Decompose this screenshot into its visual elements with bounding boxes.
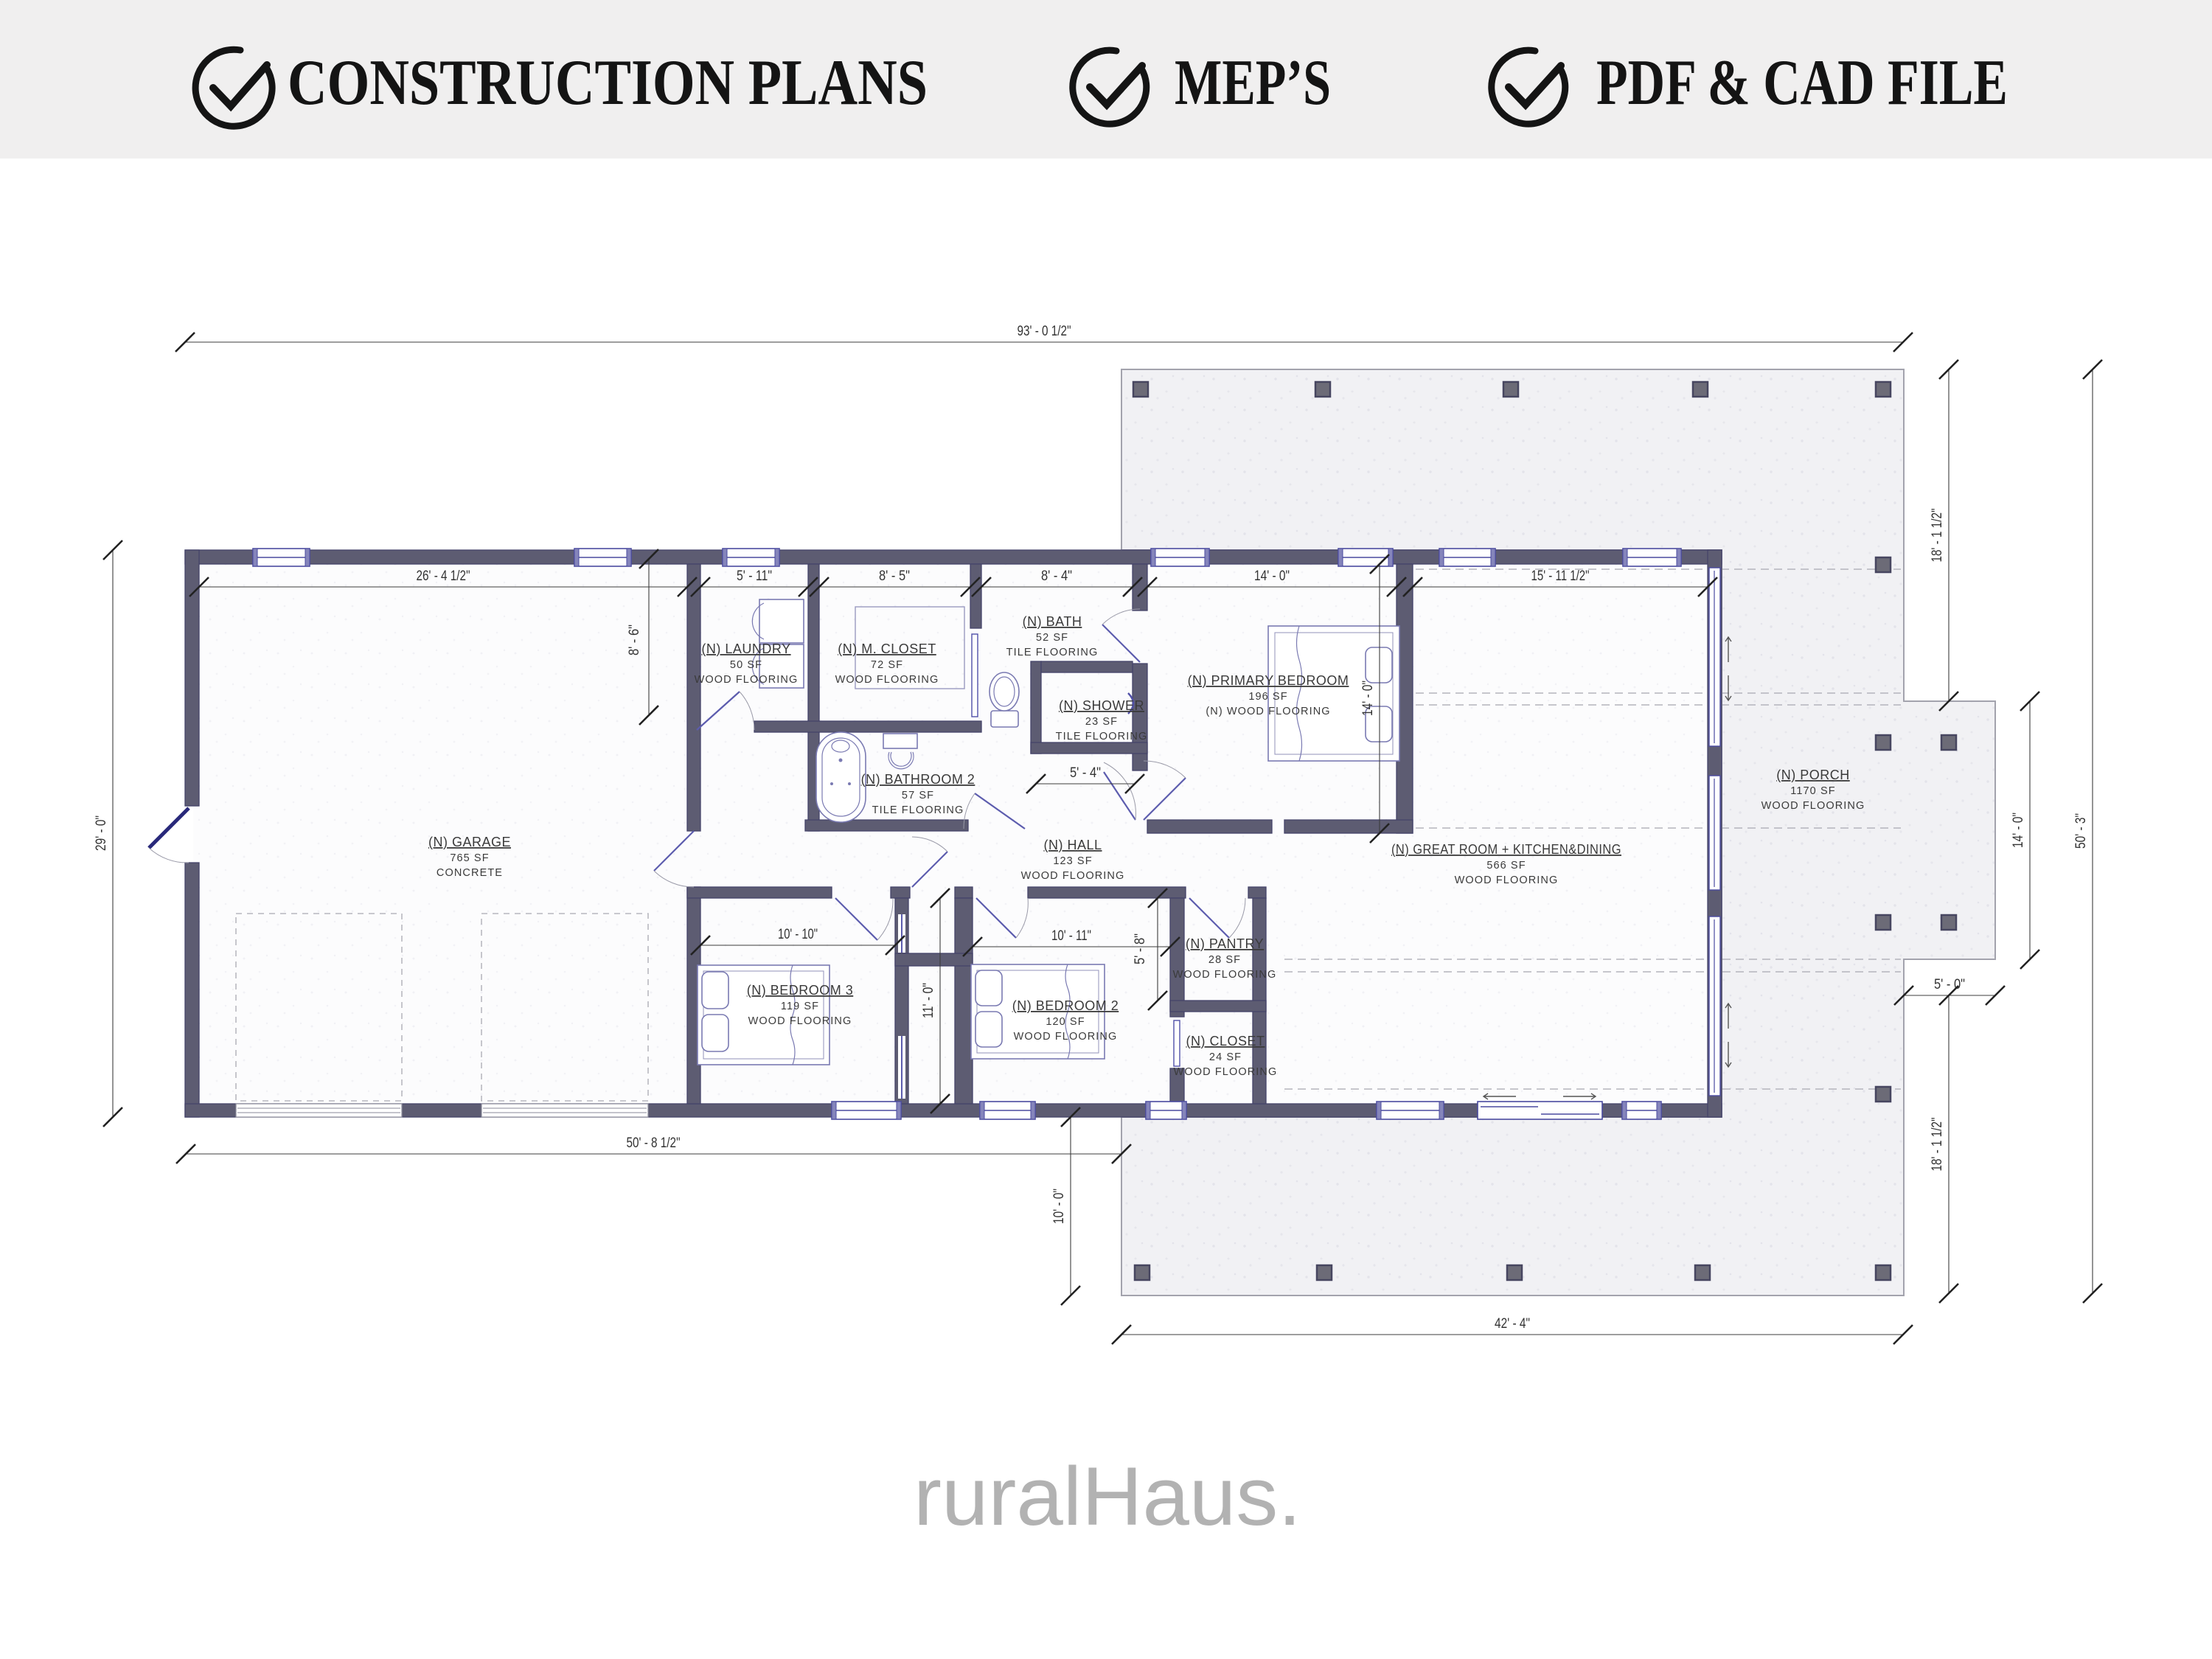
svg-text:10' - 11": 10' - 11": [1051, 928, 1091, 944]
svg-text:WOOD FLOORING: WOOD FLOORING: [1761, 800, 1865, 812]
svg-text:8' - 6": 8' - 6": [627, 625, 642, 655]
svg-text:566 SF: 566 SF: [1486, 860, 1526, 872]
svg-text:123 SF: 123 SF: [1053, 855, 1092, 867]
svg-text:72 SF: 72 SF: [871, 659, 903, 671]
svg-text:5' - 4": 5' - 4": [1070, 765, 1101, 781]
svg-text:14' - 0": 14' - 0": [1360, 681, 1376, 716]
svg-text:18' - 1 1/2": 18' - 1 1/2": [1930, 509, 1945, 563]
svg-text:WOOD FLOORING: WOOD FLOORING: [1174, 1066, 1278, 1078]
svg-text:(N) PRIMARY BEDROOM: (N) PRIMARY BEDROOM: [1188, 673, 1349, 688]
svg-text:(N) CLOSET: (N) CLOSET: [1186, 1034, 1265, 1048]
svg-text:10' - 10": 10' - 10": [778, 927, 818, 942]
svg-text:765 SF: 765 SF: [450, 852, 489, 864]
svg-text:28 SF: 28 SF: [1208, 954, 1241, 966]
svg-text:(N) BEDROOM 2: (N) BEDROOM 2: [1012, 998, 1119, 1013]
svg-text:(N) PANTRY: (N) PANTRY: [1186, 936, 1264, 951]
svg-text:MEP’S: MEP’S: [1175, 47, 1331, 119]
svg-text:10' - 0": 10' - 0": [1051, 1189, 1067, 1224]
svg-text:(N) HALL: (N) HALL: [1043, 838, 1102, 852]
svg-text:(N) BEDROOM 3: (N) BEDROOM 3: [747, 983, 854, 998]
svg-text:(N) LAUNDRY: (N) LAUNDRY: [701, 641, 790, 656]
svg-text:TILE FLOORING: TILE FLOORING: [1006, 647, 1099, 658]
svg-text:8' - 4": 8' - 4": [1041, 568, 1072, 584]
svg-text:196 SF: 196 SF: [1248, 691, 1287, 703]
svg-text:52 SF: 52 SF: [1036, 632, 1068, 644]
svg-text:TILE FLOORING: TILE FLOORING: [1056, 731, 1148, 742]
svg-text:WOOD FLOORING: WOOD FLOORING: [1173, 969, 1277, 981]
svg-text:15' - 11 1/2": 15' - 11 1/2": [1531, 568, 1590, 584]
svg-text:WOOD FLOORING: WOOD FLOORING: [1455, 874, 1559, 886]
svg-text:8' - 5": 8' - 5": [879, 568, 910, 584]
svg-text:(N) GREAT ROOM + KITCHEN&DININ: (N) GREAT ROOM + KITCHEN&DINING: [1391, 842, 1621, 857]
svg-text:42' - 4": 42' - 4": [1495, 1316, 1530, 1332]
svg-text:CONCRETE: CONCRETE: [437, 867, 503, 879]
svg-text:120 SF: 120 SF: [1046, 1016, 1085, 1028]
svg-text:14' - 0": 14' - 0": [1254, 568, 1290, 584]
svg-text:119 SF: 119 SF: [781, 1001, 819, 1012]
svg-text:CONSTRUCTION PLANS: CONSTRUCTION PLANS: [288, 47, 928, 119]
svg-text:ruralHaus.: ruralHaus.: [914, 1450, 1301, 1543]
svg-text:29' - 0": 29' - 0": [94, 815, 109, 851]
svg-text:14' - 0": 14' - 0": [2011, 813, 2026, 848]
svg-text:18' - 1 1/2": 18' - 1 1/2": [1930, 1118, 1945, 1172]
svg-text:WOOD FLOORING: WOOD FLOORING: [1014, 1031, 1118, 1043]
svg-text:11' - 0": 11' - 0": [921, 983, 936, 1018]
svg-text:(N) BATHROOM 2: (N) BATHROOM 2: [861, 772, 975, 787]
svg-text:(N) WOOD FLOORING: (N) WOOD FLOORING: [1206, 706, 1330, 717]
svg-text:5' - 0": 5' - 0": [1934, 977, 1965, 992]
svg-text:(N) M. CLOSET: (N) M. CLOSET: [838, 641, 936, 656]
svg-text:PDF & CAD FILE: PDF & CAD FILE: [1596, 47, 2008, 119]
svg-text:50 SF: 50 SF: [730, 659, 762, 671]
svg-text:24 SF: 24 SF: [1209, 1051, 1242, 1063]
svg-text:TILE FLOORING: TILE FLOORING: [872, 804, 964, 816]
svg-text:WOOD FLOORING: WOOD FLOORING: [835, 674, 939, 686]
svg-text:(N) GARAGE: (N) GARAGE: [428, 835, 511, 849]
svg-text:57 SF: 57 SF: [902, 790, 934, 801]
svg-text:WOOD FLOORING: WOOD FLOORING: [695, 674, 799, 686]
svg-text:(N) PORCH: (N) PORCH: [1776, 768, 1850, 782]
svg-text:93' - 0 1/2": 93' - 0 1/2": [1018, 324, 1071, 339]
svg-text:WOOD FLOORING: WOOD FLOORING: [748, 1015, 852, 1027]
svg-text:23 SF: 23 SF: [1085, 716, 1118, 728]
svg-text:5' - 8": 5' - 8": [1133, 933, 1148, 964]
svg-text:1170 SF: 1170 SF: [1790, 785, 1835, 797]
svg-text:50' - 8 1/2": 50' - 8 1/2": [627, 1135, 681, 1151]
svg-text:26' - 4 1/2": 26' - 4 1/2": [417, 568, 470, 584]
svg-text:(N) SHOWER: (N) SHOWER: [1059, 698, 1144, 713]
svg-text:(N) BATH: (N) BATH: [1023, 614, 1082, 629]
svg-text:WOOD FLOORING: WOOD FLOORING: [1021, 870, 1125, 882]
svg-text:5' - 11": 5' - 11": [737, 568, 772, 584]
svg-text:50' - 3": 50' - 3": [2073, 813, 2089, 849]
